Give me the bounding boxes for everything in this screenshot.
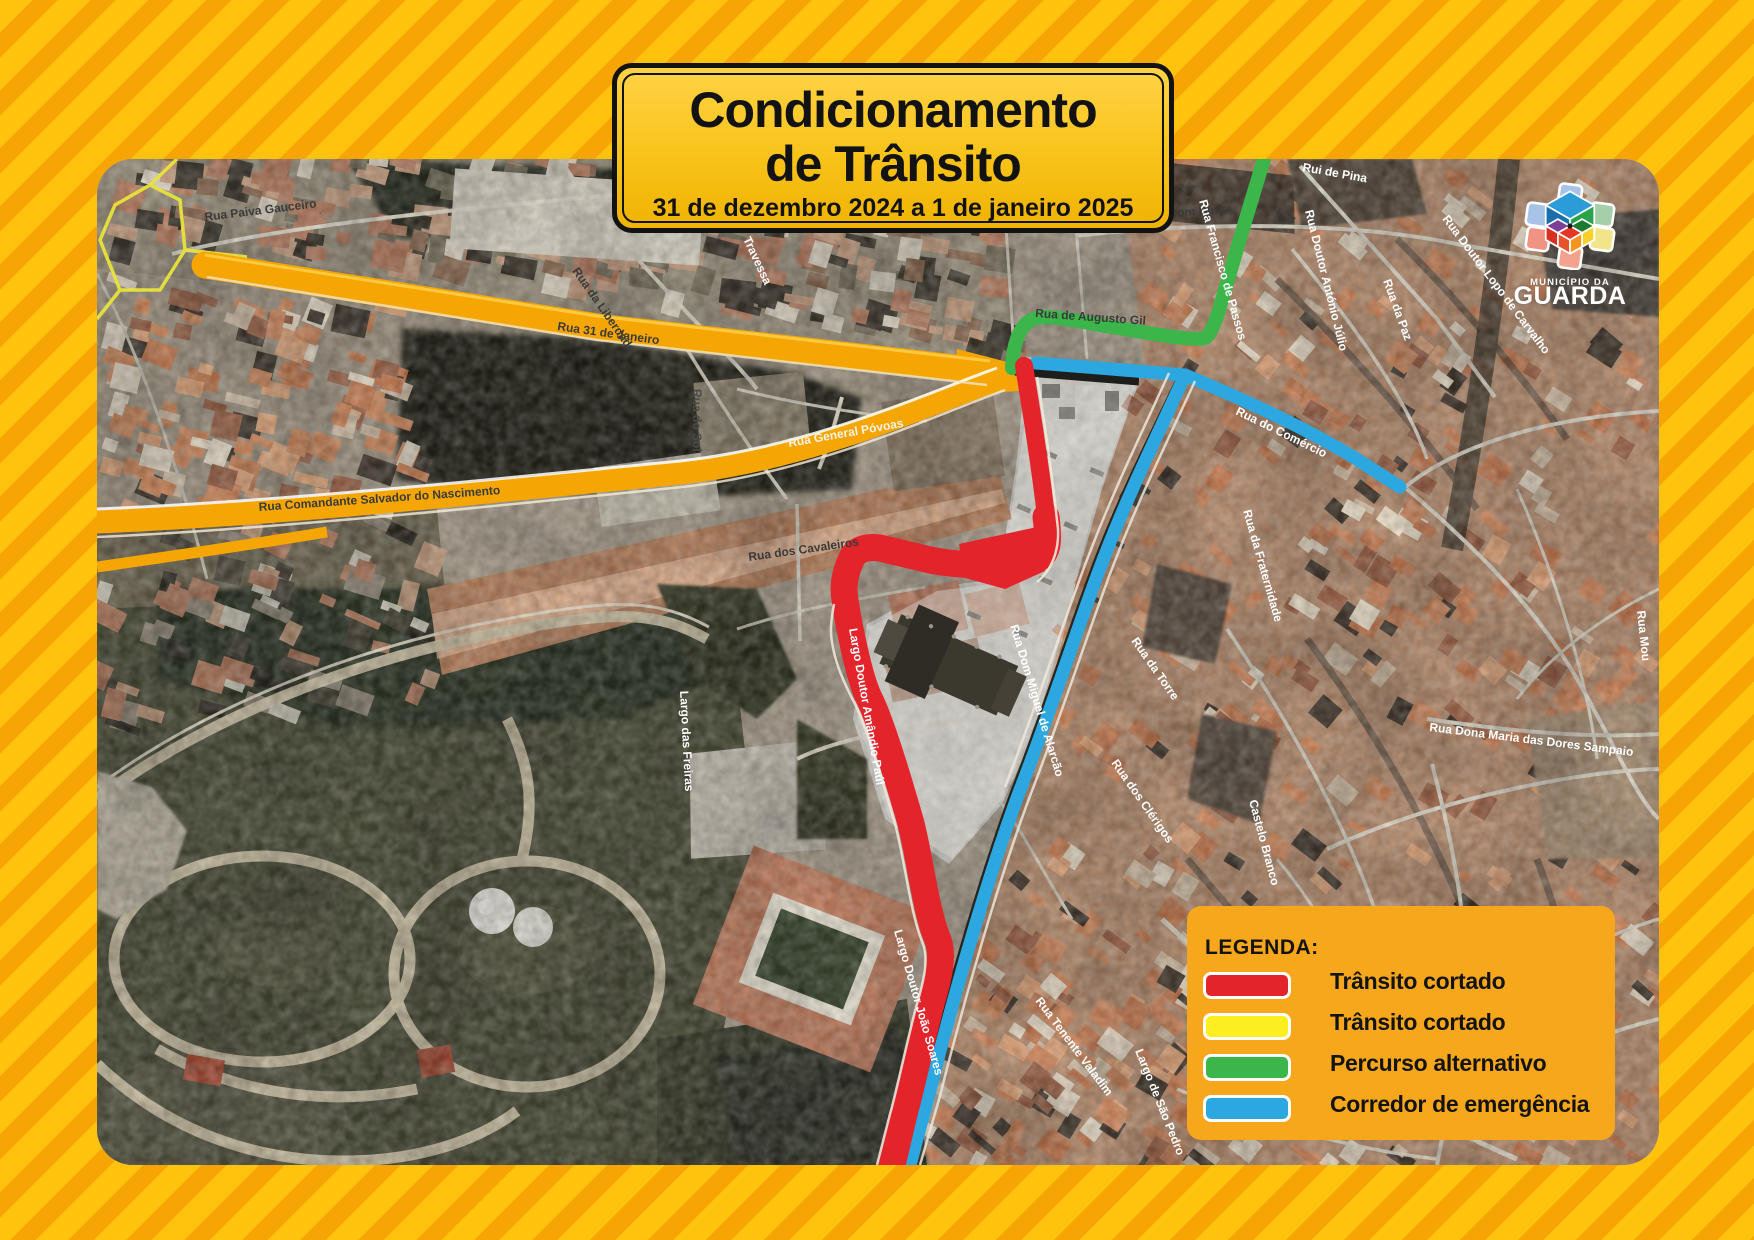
svg-text:Rua do Sol: Rua do Sol [690,389,704,452]
